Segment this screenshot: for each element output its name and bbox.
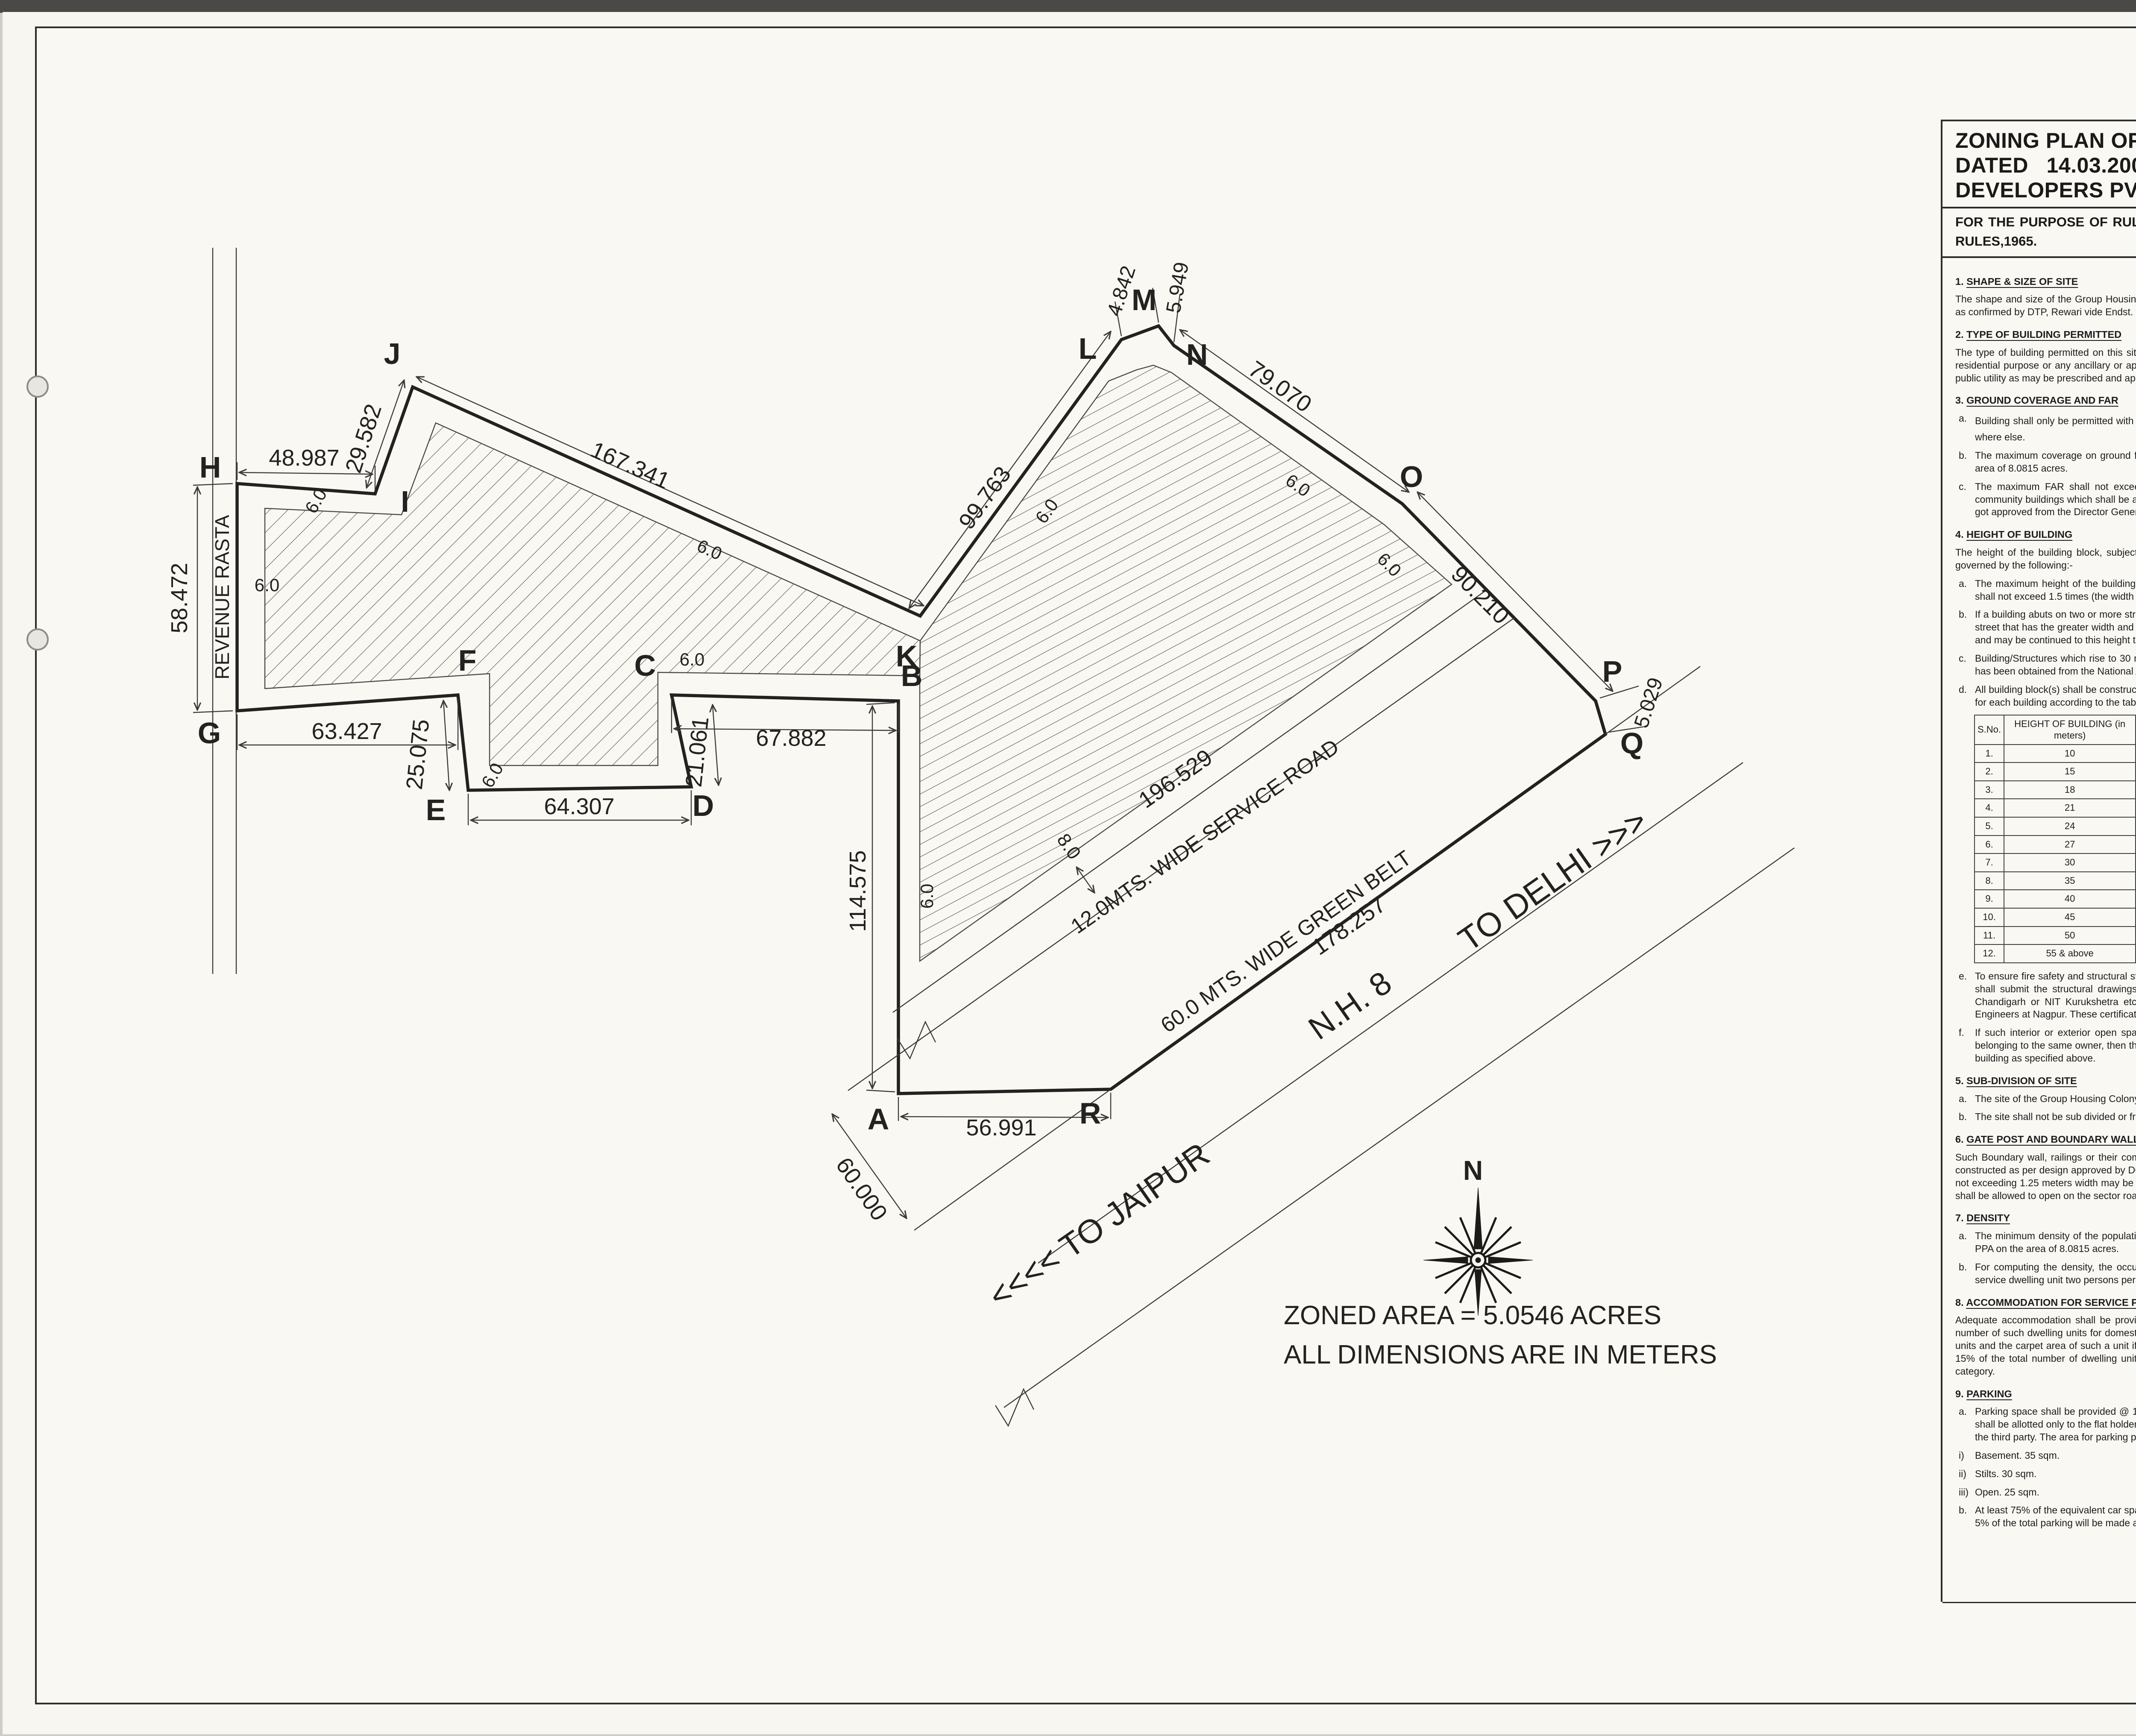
clause-c: c.Building/Structures which rise to 30 m…	[1955, 652, 2136, 678]
section-6: 6. GATE POST AND BOUNDARY WALLSuch Bound…	[1955, 1133, 2136, 1202]
plan-label-n: N	[1186, 338, 1208, 371]
plan-label-48.987: 48.987	[269, 445, 339, 471]
plan-label-c: C	[634, 649, 656, 682]
road-break-icon	[995, 1389, 1034, 1426]
plan-label-n.h.-8: N.H. 8	[1302, 965, 1398, 1047]
plan-label-revenue-rasta: REVENUE RASTA	[211, 515, 233, 679]
drawing-subtitle: FOR THE PURPOSE OF RULE 38(xlii) AND 48 …	[1955, 213, 2136, 251]
plan-label-d: D	[692, 789, 714, 822]
clause-b: b.If a building abuts on two or more str…	[1955, 608, 2136, 647]
clause-b: b.At least 75% of the equivalent car spa…	[1955, 1504, 2136, 1530]
plan-label-60.000: 60.000	[831, 1153, 892, 1226]
clause-d: d.All building block(s) shall be constru…	[1955, 683, 2136, 709]
plan-label-g: G	[198, 716, 221, 750]
section-9: 9. PARKINGa.Parking space shall be provi…	[1955, 1387, 2136, 1530]
regulations-panel: ZONING PLAN OF GROUP HOUSING COLONY AREA…	[1941, 120, 2136, 1602]
table-row: 5.248	[1975, 817, 2136, 836]
table-row: 6.279	[1975, 836, 2136, 854]
section-heading: 5. SUB-DIVISION OF SITE	[1955, 1074, 2136, 1088]
clause-a: a.The site of the Group Housing Colony s…	[1955, 1093, 2136, 1106]
setback-table: S.No.HEIGHT OF BUILDING (in meters)SET B…	[1974, 715, 2136, 963]
plan-label-all-dimensions-are-in-meters: ALL DIMENSIONS ARE IN METERS	[1284, 1340, 1717, 1369]
plan-label-6.0: 6.0	[917, 884, 937, 909]
section-heading: 2. TYPE OF BUILDING PERMITTED	[1955, 328, 2136, 341]
plan-label-r: R	[1080, 1097, 1101, 1130]
road-break-icon	[897, 1022, 936, 1059]
compass-rose-icon	[1423, 1188, 1533, 1316]
clause-f: f.If such interior or exterior open spac…	[1955, 1026, 2136, 1065]
plan-label-o: O	[1400, 460, 1423, 493]
setback-table-header: HEIGHT OF BUILDING (in meters)	[2004, 715, 2136, 745]
table-row: 11.5014	[1975, 927, 2136, 945]
plan-label-25.075: 25.075	[402, 718, 434, 791]
paragraph: The height of the building block, subjec…	[1955, 546, 2136, 572]
section-heading: 8. ACCOMMODATION FOR SERVICE POPULATION	[1955, 1296, 2136, 1309]
plan-label-p: P	[1602, 655, 1623, 688]
plan-label-l: L	[1079, 332, 1097, 365]
binder-hole-icon	[27, 376, 48, 397]
table-row: 7.3010	[1975, 853, 2136, 872]
plan-label-i: I	[401, 485, 409, 518]
clause-a: a.The maximum height of the buildings sh…	[1955, 578, 2136, 603]
plan-label-j: J	[384, 337, 401, 370]
plan-label-f: F	[458, 644, 477, 677]
binder-hole-icon	[27, 629, 48, 650]
clause-i: i)Basement. 35 sqm.	[1955, 1449, 2136, 1462]
site-plan-drawing: HIJKLMNOPQRABCDEFG48.98729.58258.472167.…	[0, 0, 2136, 1736]
plan-label-a: A	[868, 1103, 889, 1136]
plan-label-n: N	[1463, 1155, 1483, 1186]
plan-label-6.0: 6.0	[255, 575, 279, 595]
regulations-column-1: 1. SHAPE & SIZE OF SITEThe shape and siz…	[1942, 258, 2136, 1535]
paragraph: Such Boundary wall, railings or their co…	[1955, 1151, 2136, 1202]
plan-label-56.991: 56.991	[966, 1115, 1036, 1141]
section-heading: 4. HEIGHT OF BUILDING	[1955, 528, 2136, 541]
setback-table-header: S.No.	[1975, 715, 2004, 745]
plan-label-5.949: 5.949	[1162, 261, 1193, 315]
clause-a: a.Building shall only be permitted with …	[1955, 412, 2136, 444]
subtitle-block: FOR THE PURPOSE OF RULE 38(xlii) AND 48 …	[1942, 208, 2136, 258]
plan-label-58.472: 58.472	[167, 563, 192, 633]
section-heading: 7. DENSITY	[1955, 1211, 2136, 1225]
clause-b: b.For computing the density, the occupan…	[1955, 1261, 2136, 1287]
section-heading: 1. SHAPE & SIZE OF SITE	[1955, 275, 2136, 288]
clause-iii: iii)Open. 25 sqm.	[1955, 1486, 2136, 1499]
clause-ii: ii)Stilts. 30 sqm.	[1955, 1468, 2136, 1481]
plan-label-q: Q	[1620, 727, 1643, 760]
clause-b: b.The maximum coverage on ground floor s…	[1955, 449, 2136, 475]
plan-label-64.307: 64.307	[544, 794, 614, 819]
clause-e: e.To ensure fire safety and structural s…	[1955, 970, 2136, 1021]
table-row: 1.103	[1975, 745, 2136, 763]
plan-label-b: B	[901, 659, 923, 692]
clause-b: b.The site shall not be sub divided or f…	[1955, 1111, 2136, 1123]
section-3: 3. GROUND COVERAGE AND FARa.Building sha…	[1955, 394, 2136, 519]
plan-label-m: M	[1132, 283, 1156, 317]
panel-bottom-rule	[1942, 1602, 2136, 1603]
table-row: 9.4012	[1975, 890, 2136, 908]
paragraph: Adequate accommodation shall be provided…	[1955, 1314, 2136, 1378]
table-row: 2.155	[1975, 762, 2136, 781]
plan-label-5.029: 5.029	[1630, 675, 1667, 731]
plan-label-e: E	[426, 793, 446, 827]
table-row: 8.3511	[1975, 872, 2136, 890]
plan-label-h: H	[200, 451, 221, 484]
clause-a: a.Parking space shall be provided @ 1.5 …	[1955, 1405, 2136, 1444]
table-row: 10.4513	[1975, 908, 2136, 927]
plan-label--to-jaipur: <<<< TO JAIPUR	[982, 1135, 1216, 1315]
section-4: 4. HEIGHT OF BUILDINGThe height of the b…	[1955, 528, 2136, 1065]
section-heading: 3. GROUND COVERAGE AND FAR	[1955, 394, 2136, 407]
section-heading: 9. PARKING	[1955, 1387, 2136, 1401]
plan-label-114.575: 114.575	[845, 850, 871, 932]
scanned-zoning-plan-sheet: { "title": "ZONING PLAN OF GROUP HOUSING…	[0, 0, 2136, 1736]
section-2: 2. TYPE OF BUILDING PERMITTEDThe type of…	[1955, 328, 2136, 384]
plan-label-6.0: 6.0	[680, 649, 704, 669]
section-5: 5. SUB-DIVISION OF SITEa.The site of the…	[1955, 1074, 2136, 1123]
plan-label-79.070: 79.070	[1244, 356, 1316, 417]
plan-label-zoned-area-5.0546-acres: ZONED AREA = 5.0546 ACRES	[1284, 1301, 1661, 1330]
paragraph: The shape and size of the Group Housing …	[1955, 293, 2136, 319]
plan-label-90.210: 90.210	[1446, 561, 1514, 629]
paragraph: The type of building permitted on this s…	[1955, 346, 2136, 385]
section-heading: 6. GATE POST AND BOUNDARY WALL	[1955, 1133, 2136, 1146]
plan-label-29.582: 29.582	[340, 401, 387, 476]
clause-c: c.The maximum FAR shall not exceed 175 o…	[1955, 481, 2136, 519]
table-row: 3.186	[1975, 781, 2136, 799]
section-1: 1. SHAPE & SIZE OF SITEThe shape and siz…	[1955, 275, 2136, 319]
drawing-title: ZONING PLAN OF GROUP HOUSING COLONY AREA…	[1955, 128, 2136, 202]
title-block: ZONING PLAN OF GROUP HOUSING COLONY AREA…	[1942, 121, 2136, 208]
plan-label-67.882: 67.882	[756, 725, 826, 751]
clause-a: a.The minimum density of the population …	[1955, 1230, 2136, 1255]
section-8: 8. ACCOMMODATION FOR SERVICE POPULATIONA…	[1955, 1296, 2136, 1378]
table-row: 4.217	[1975, 799, 2136, 817]
section-7: 7. DENSITYa.The minimum density of the p…	[1955, 1211, 2136, 1286]
table-row: 12.55 & above16	[1975, 944, 2136, 963]
plan-label-21.061: 21.061	[681, 716, 714, 789]
plan-label-63.427: 63.427	[311, 718, 382, 744]
